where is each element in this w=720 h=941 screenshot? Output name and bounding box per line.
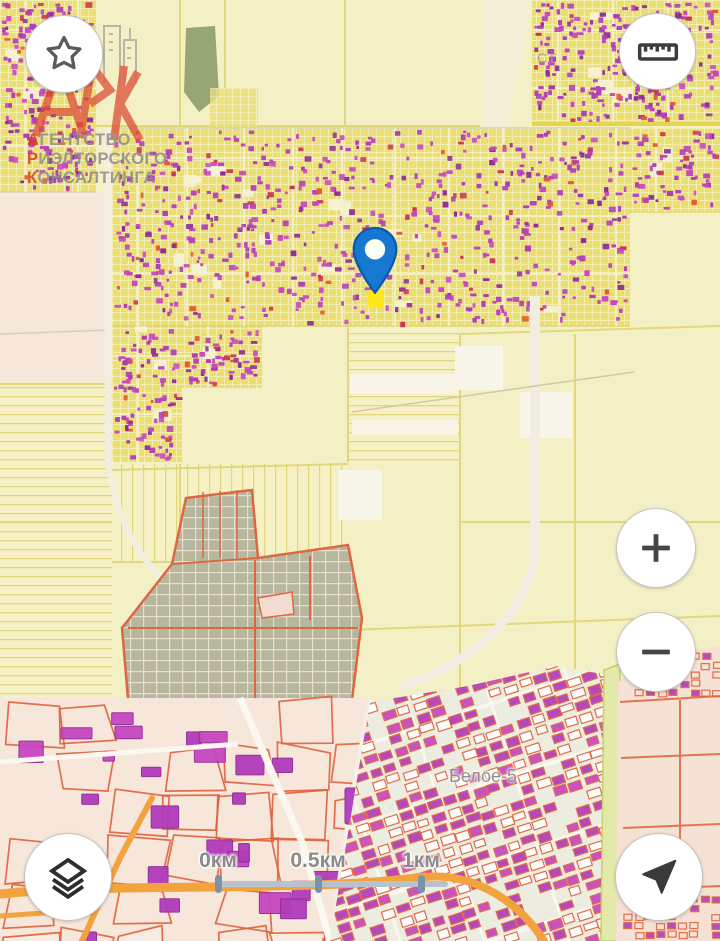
location-pin-icon[interactable]: [352, 226, 398, 296]
left-pink-parcel: [0, 192, 110, 382]
locate-button[interactable]: [615, 833, 703, 921]
zoom-in-button[interactable]: [616, 508, 696, 588]
navigation-arrow-icon: [636, 854, 682, 900]
measure-button[interactable]: [619, 13, 696, 90]
layers-icon: [44, 853, 92, 901]
ruler-icon: [636, 30, 680, 74]
zoom-out-button[interactable]: [616, 612, 696, 692]
favorites-button[interactable]: [25, 15, 103, 93]
map-app: АГЕНТСТВО РИЭЛТОРСКОГО КОНСАЛТИНГА СТ Бе…: [0, 0, 720, 941]
star-icon: [41, 31, 87, 77]
minus-icon: [633, 629, 679, 675]
layers-button[interactable]: [24, 833, 112, 921]
map-canvas[interactable]: [0, 0, 720, 941]
plus-icon: [633, 525, 679, 571]
